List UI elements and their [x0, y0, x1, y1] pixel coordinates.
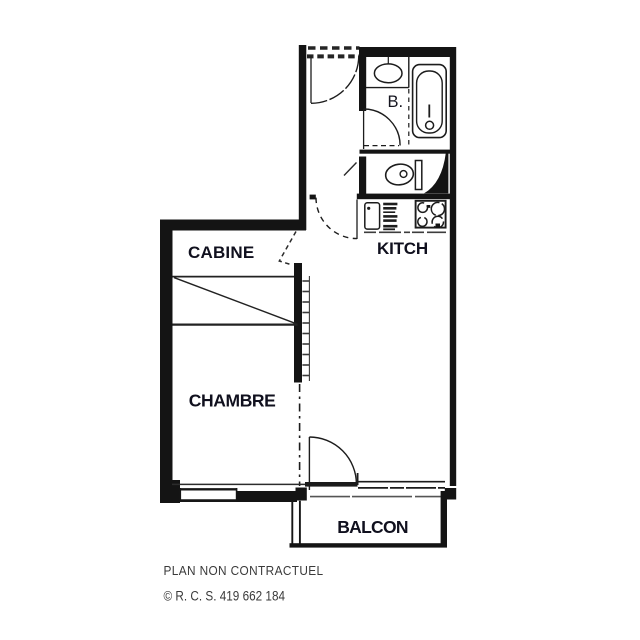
- svg-text:CHAMBRE: CHAMBRE: [189, 391, 276, 411]
- svg-text:KITCH: KITCH: [377, 239, 428, 258]
- svg-text:© R. C. S. 419 662 184: © R. C. S. 419 662 184: [164, 589, 286, 604]
- svg-text:B.: B.: [388, 93, 404, 111]
- svg-text:BALCON: BALCON: [337, 517, 408, 537]
- svg-text:CABINE: CABINE: [188, 243, 254, 262]
- svg-text:PLAN NON CONTRACTUEL: PLAN NON CONTRACTUEL: [164, 564, 324, 578]
